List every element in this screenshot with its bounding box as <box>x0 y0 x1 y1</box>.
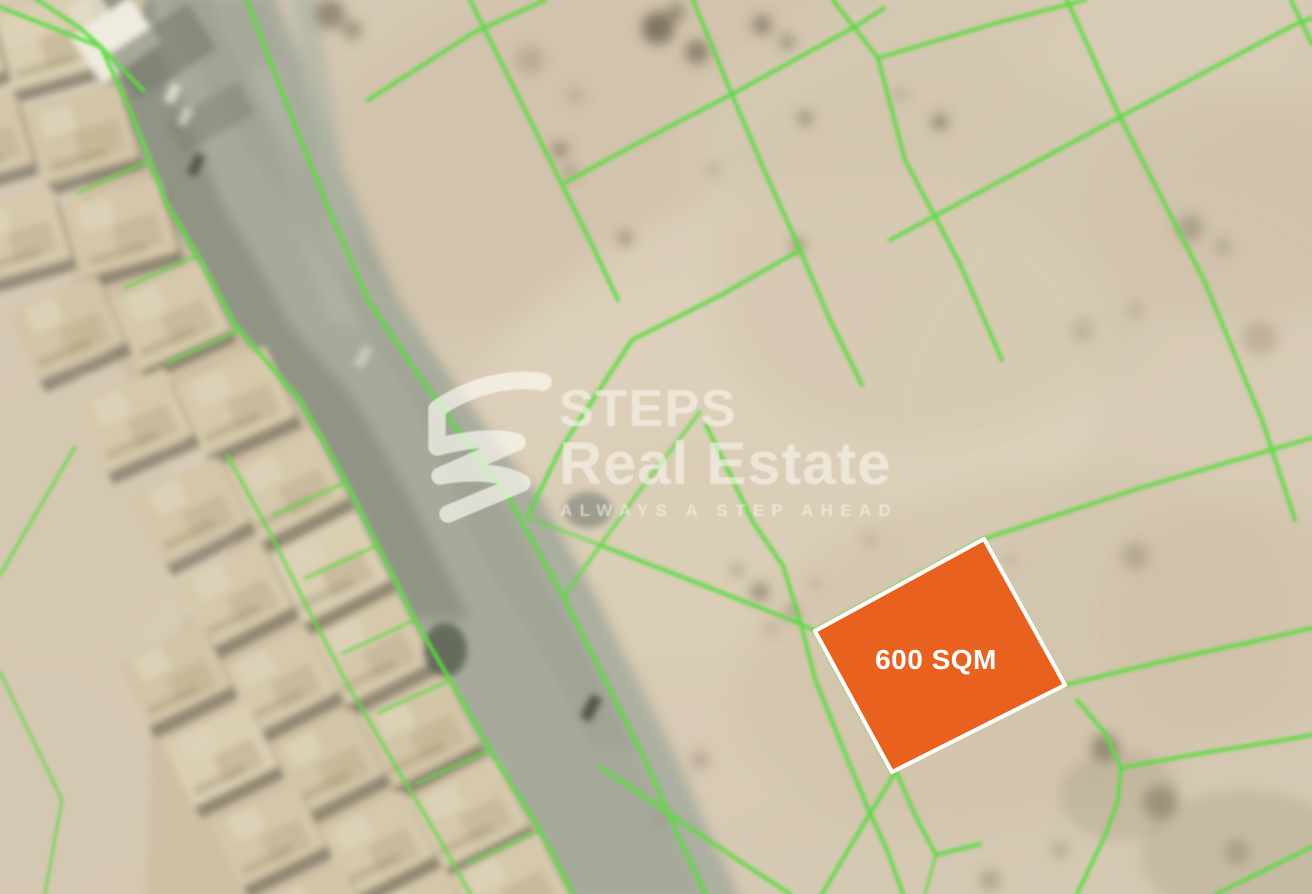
svg-text:ALWAYS A STEP AHEAD: ALWAYS A STEP AHEAD <box>560 501 898 520</box>
svg-text:600 SQM: 600 SQM <box>875 644 997 675</box>
svg-text:Real Estate: Real Estate <box>559 430 891 497</box>
